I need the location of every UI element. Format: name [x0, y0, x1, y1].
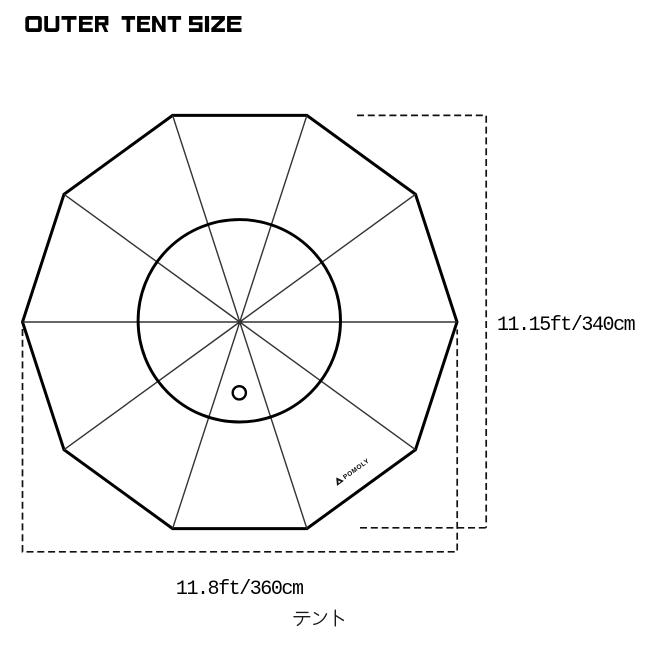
- svg-text:11.8ft/360cm: 11.8ft/360cm: [176, 578, 303, 601]
- svg-text:11.15ft/340cm: 11.15ft/340cm: [497, 314, 635, 337]
